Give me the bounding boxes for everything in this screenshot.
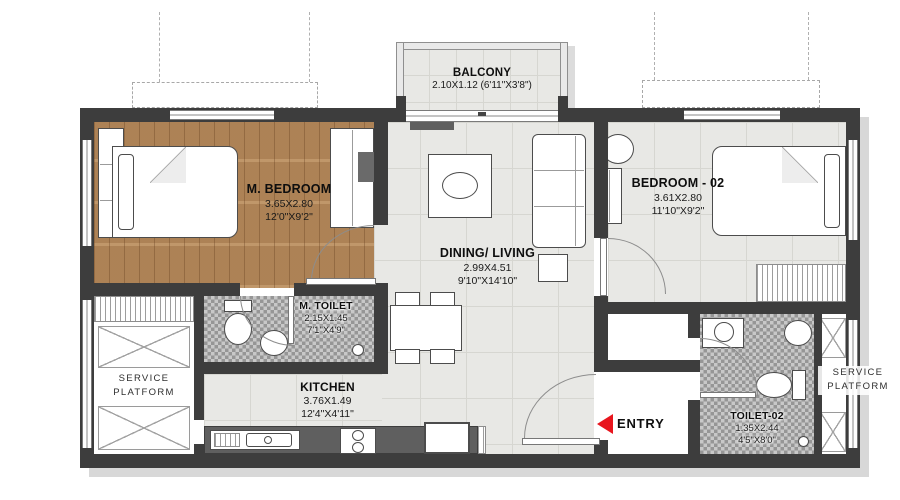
service-platform-right-label: SERVICE PLATFORM bbox=[818, 366, 898, 395]
bedroom2-wardrobe bbox=[756, 264, 846, 302]
dining-chair bbox=[395, 349, 420, 364]
master-bedroom-name: M. BEDROOM bbox=[208, 182, 370, 198]
window-left-bedroom bbox=[82, 140, 92, 246]
wall-mtoilet-bottom bbox=[196, 362, 388, 374]
master-toilet-dims-m: 2.15X1.45 bbox=[262, 313, 390, 325]
wall-lobby-top bbox=[594, 360, 700, 372]
balcony-dims: 2.10X1.12 (6'11"X3'8") bbox=[402, 80, 562, 93]
master-bedroom-dims-ft: 12'0"X9'2" bbox=[208, 211, 370, 224]
kitchen-dims-m: 3.76X1.49 bbox=[250, 395, 405, 408]
master-toilet-label: M. TOILET 2.15X1.45 7'1"X4'9" bbox=[262, 300, 390, 337]
entry-label: ENTRY bbox=[617, 416, 665, 431]
service-right-line2: PLATFORM bbox=[818, 380, 898, 394]
washing-machine-drum bbox=[714, 322, 734, 342]
wall-living-bed2-upper bbox=[594, 108, 608, 238]
projection-dashed-box-left bbox=[132, 82, 318, 108]
bedroom2-door-leaf bbox=[600, 238, 607, 296]
toilet2-dims-m: 1.35X2.44 bbox=[700, 423, 814, 435]
bedroom2-dims-m: 3.61X2.80 bbox=[598, 192, 758, 205]
dining-table bbox=[390, 305, 462, 351]
hob-burner-icon bbox=[352, 442, 364, 453]
service-left-xbox-top bbox=[98, 326, 190, 368]
master-bed-pillow bbox=[118, 154, 134, 230]
kitchen-name: KITCHEN bbox=[250, 380, 405, 395]
service-right-xbox-top bbox=[820, 318, 846, 358]
wall-toilet2-left-a bbox=[688, 314, 700, 338]
fridge bbox=[424, 422, 470, 454]
entry-arrow-icon bbox=[597, 414, 613, 434]
dining-living-name: DINING/ LIVING bbox=[405, 246, 570, 262]
kitchen-dims-ft: 12'4"X4'11" bbox=[250, 408, 405, 421]
toilet2-label: TOILET-02 1.35X2.44 4'5"X8'0" bbox=[700, 410, 814, 447]
bedroom2-pillow bbox=[824, 154, 840, 228]
sliding-door-handle bbox=[478, 112, 486, 116]
coffee-table-decor bbox=[442, 172, 478, 199]
balcony-label: BALCONY 2.10X1.12 (6'11"X3'8") bbox=[402, 66, 562, 93]
balcony-wall-stub-left bbox=[396, 96, 406, 122]
service-left-line2: PLATFORM bbox=[96, 386, 192, 400]
balcony-rail-top bbox=[396, 42, 568, 50]
master-bedroom-label: M. BEDROOM 3.65X2.80 12'0"X9'2" bbox=[208, 182, 370, 224]
window-bedroom2 bbox=[684, 110, 780, 120]
dining-living-dims-ft: 9'10"X14'10" bbox=[405, 275, 570, 288]
extension-dash-line bbox=[808, 12, 809, 80]
toilet2-basin-icon bbox=[784, 320, 812, 346]
wall-service-left-a bbox=[194, 283, 204, 420]
service-left-xbox-bottom bbox=[98, 406, 190, 450]
master-bedroom-dresser bbox=[358, 152, 374, 182]
window-master-bedroom bbox=[170, 110, 274, 120]
wall-toilet2-left-b bbox=[688, 400, 700, 454]
bedroom2-label: BEDROOM - 02 3.61X2.80 11'10"X9'2" bbox=[598, 176, 758, 218]
sofa-seat-line bbox=[534, 206, 584, 207]
extension-dash-line bbox=[159, 12, 160, 82]
entry-door-leaf bbox=[522, 438, 600, 445]
toilet2-wc-cistern bbox=[792, 370, 806, 400]
bedroom2-sheet-fold bbox=[782, 147, 818, 183]
service-right-xbox-bottom bbox=[820, 412, 846, 452]
toilet2-name: TOILET-02 bbox=[700, 410, 814, 423]
dining-living-dims-m: 2.99X4.51 bbox=[405, 262, 570, 275]
service-platform-left-label: SERVICE PLATFORM bbox=[96, 372, 192, 401]
wall-mbed-bottom-a bbox=[94, 283, 240, 296]
kitchen-drainboard bbox=[214, 433, 240, 447]
bedroom2-dims-ft: 11'10"X9'2" bbox=[598, 205, 758, 218]
master-toilet-dims-ft: 7'1"X4'9" bbox=[262, 325, 390, 337]
dining-living-label: DINING/ LIVING 2.99X4.51 9'10"X14'10" bbox=[405, 246, 570, 288]
service-left-hatch bbox=[94, 296, 194, 322]
wall-service-left-b bbox=[194, 444, 204, 454]
extension-dash-line bbox=[654, 12, 655, 80]
master-toilet-name: M. TOILET bbox=[262, 300, 390, 313]
kitchen-label: KITCHEN 3.76X1.49 12'4"X4'11" bbox=[250, 380, 405, 421]
wall-bottom bbox=[80, 454, 860, 468]
sink-tap-icon bbox=[264, 436, 272, 444]
window-left-service bbox=[82, 300, 92, 448]
sofa bbox=[532, 134, 586, 248]
service-left-line1: SERVICE bbox=[96, 372, 192, 386]
service-right-line1: SERVICE bbox=[818, 366, 898, 380]
wall-bed2-bottom bbox=[594, 302, 860, 314]
wall-mbed-living-upper bbox=[374, 108, 388, 225]
toilet2-dims-ft: 4'5"X8'0" bbox=[700, 435, 814, 447]
extension-dash-line bbox=[309, 12, 310, 82]
projection-dashed-box-right bbox=[642, 80, 820, 108]
balcony-name: BALCONY bbox=[402, 66, 562, 80]
dining-chair bbox=[430, 349, 455, 364]
window-right-bedroom2 bbox=[848, 140, 858, 240]
mtoilet-shower-drain-icon bbox=[352, 344, 364, 356]
hob-burner-icon bbox=[352, 430, 364, 441]
master-bedroom-dims-m: 3.65X2.80 bbox=[208, 198, 370, 211]
floor-plan: BALCONY 2.10X1.12 (6'11"X3'8") M. BEDROO… bbox=[0, 0, 900, 500]
sofa-seat-line bbox=[534, 170, 584, 171]
tv-console bbox=[410, 122, 454, 130]
sofa-back-line bbox=[575, 136, 576, 246]
master-bed-sheet-fold bbox=[150, 147, 186, 183]
toilet2-wc-icon bbox=[756, 372, 792, 398]
master-bedroom-door-leaf bbox=[306, 278, 376, 285]
bedroom2-name: BEDROOM - 02 bbox=[598, 176, 758, 192]
balcony-wall-stub-right bbox=[558, 96, 568, 122]
toilet2-door-leaf bbox=[700, 392, 756, 398]
